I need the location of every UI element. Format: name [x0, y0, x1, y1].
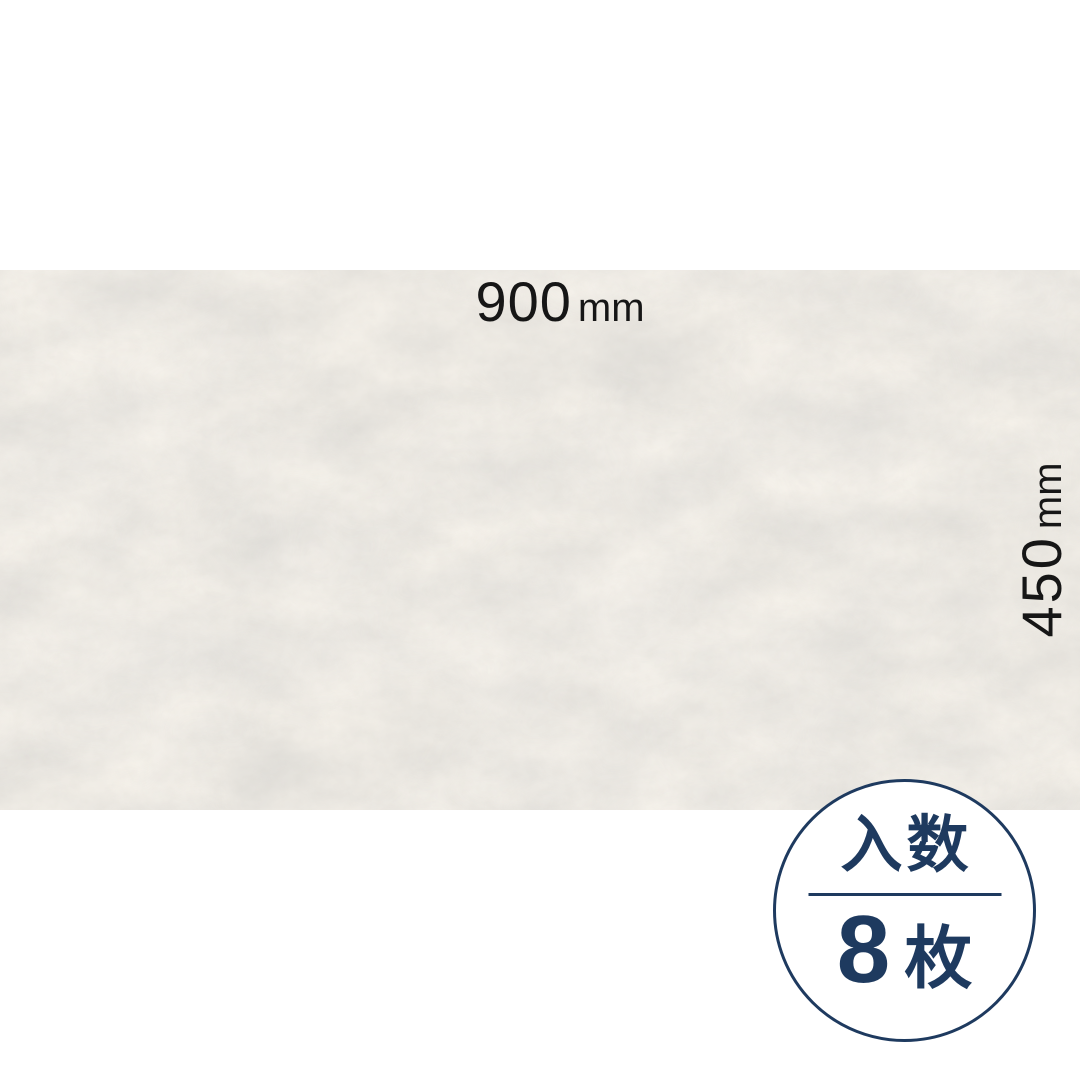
height-value: 450 [1014, 535, 1070, 637]
width-unit: mm [578, 288, 645, 328]
height-unit: mm [1028, 462, 1068, 529]
pack-count-number: 8 [837, 902, 890, 998]
stone-texture [0, 270, 1080, 810]
tile-panel-photo [0, 270, 1080, 810]
pack-quantity-count: 8 枚 [776, 902, 1033, 998]
width-dimension-label: 900 mm [475, 274, 644, 330]
product-spec-image: 900 mm 450 mm 入数 8 枚 [0, 0, 1080, 1080]
height-dimension-label: 450 mm [1014, 462, 1070, 637]
pack-quantity-badge: 入数 8 枚 [773, 779, 1036, 1042]
pack-quantity-title: 入数 [776, 815, 1033, 877]
pack-count-unit: 枚 [904, 925, 972, 993]
width-value: 900 [475, 274, 571, 330]
